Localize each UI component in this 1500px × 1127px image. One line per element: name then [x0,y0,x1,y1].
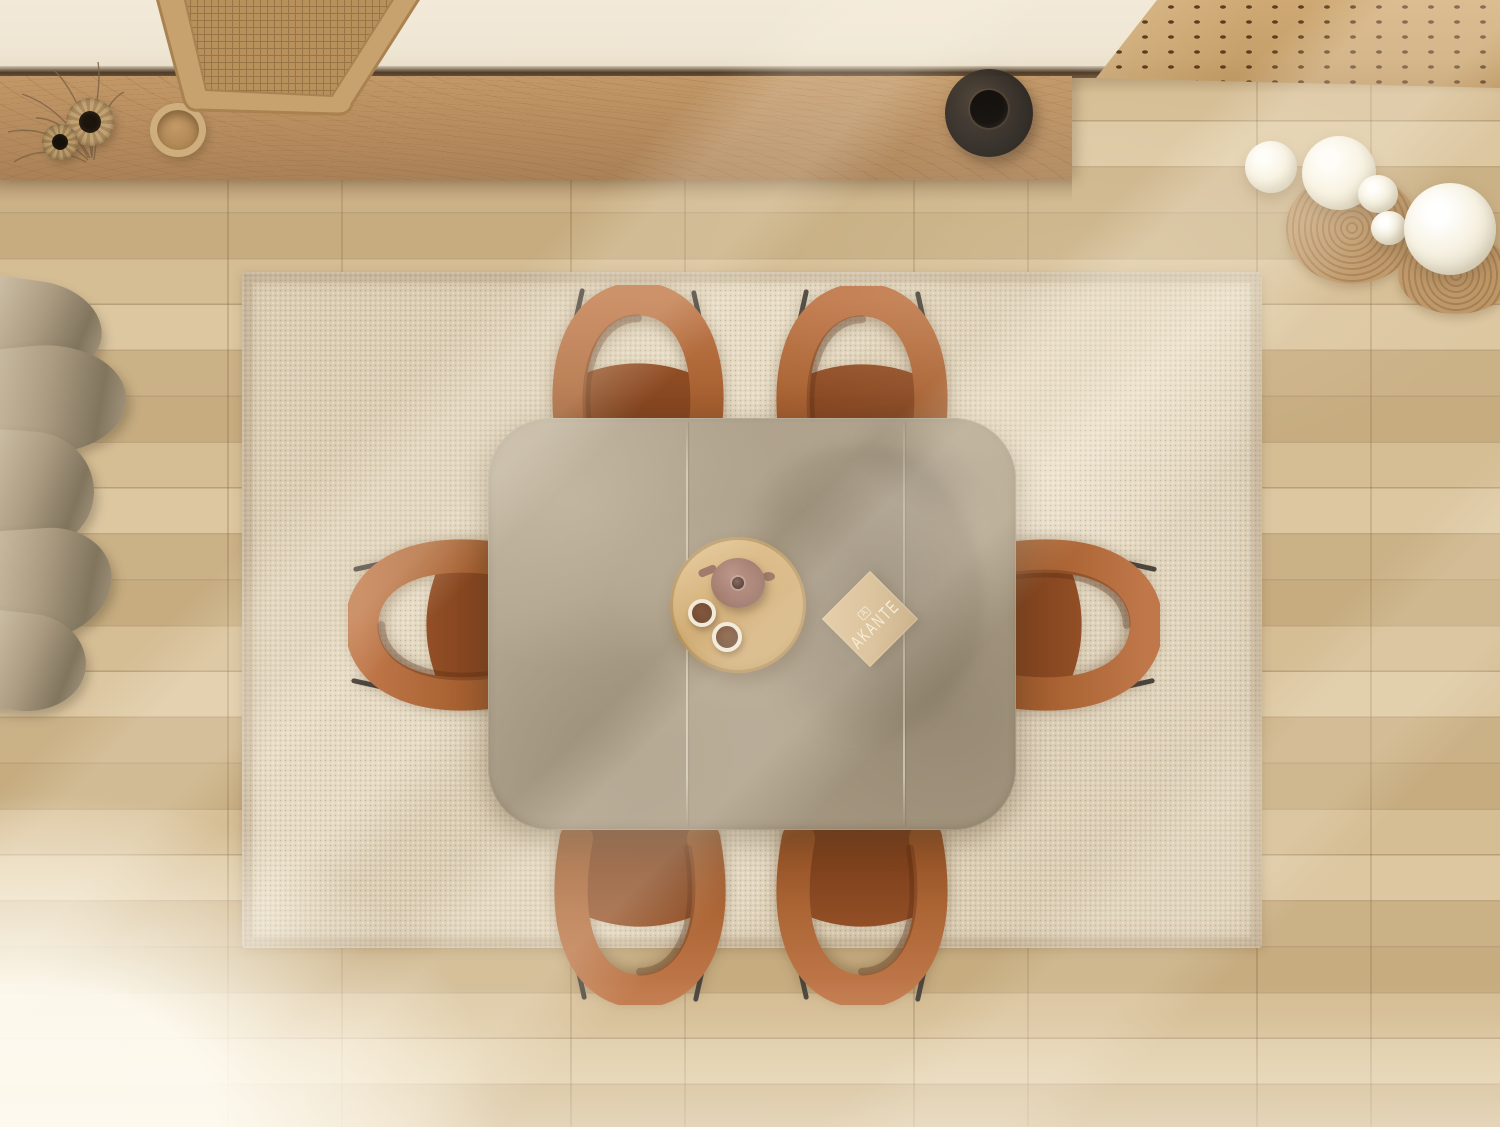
dining-room-top-view: A AKANTE [0,0,1500,1127]
floor-sheen [0,76,1500,1127]
